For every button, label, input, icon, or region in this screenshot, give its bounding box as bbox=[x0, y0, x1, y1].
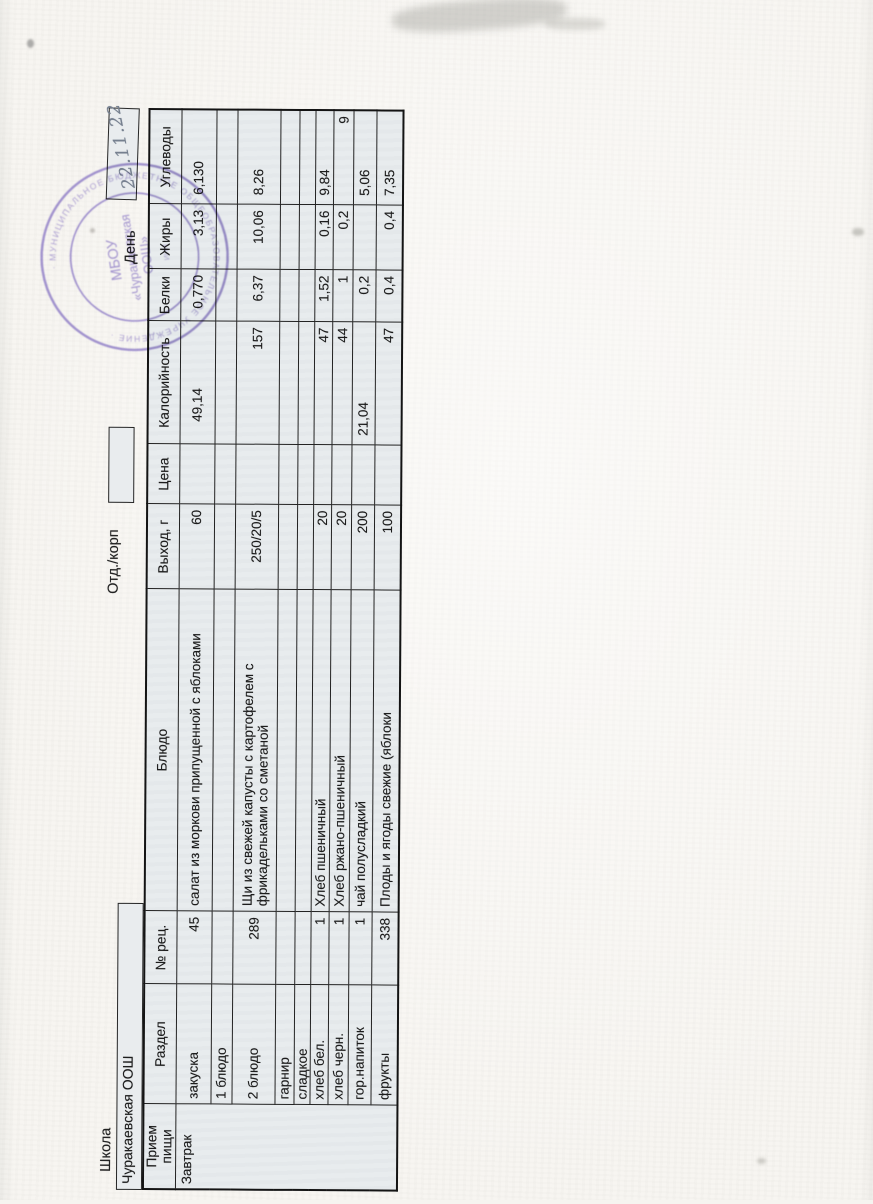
sheet-content: Школа Чуракаевская ООШ Отд./корп День 22… bbox=[0, 0, 873, 1204]
cell-rec: 1 bbox=[329, 912, 349, 985]
header-razdel: Раздел bbox=[143, 984, 176, 1104]
cell-carbs: 9,84 bbox=[315, 110, 334, 205]
cell-price bbox=[215, 444, 236, 504]
cell-price bbox=[180, 444, 215, 504]
cell-dish: Хлеб пшеничный bbox=[311, 590, 331, 912]
dept-box bbox=[108, 427, 134, 503]
dept-label: Отд./корп bbox=[106, 529, 122, 594]
school-label: Школа bbox=[98, 1128, 114, 1172]
cell-out: 100 bbox=[374, 505, 402, 590]
cell-rec: 289 bbox=[233, 912, 276, 985]
cell-protein: 0,4 bbox=[376, 270, 403, 322]
header-out: Выход, г bbox=[147, 504, 180, 589]
cell-carbs: 5,06 bbox=[353, 110, 377, 205]
cell-meal: Завтрак bbox=[175, 1104, 398, 1190]
cell-rec bbox=[276, 912, 295, 985]
cell-out bbox=[214, 504, 236, 589]
cell-carbs: 8,26 bbox=[237, 110, 281, 205]
cell-fat: 0,16 bbox=[315, 205, 333, 270]
cell-dish bbox=[212, 589, 235, 911]
cell-kcal: 44 bbox=[332, 322, 353, 445]
cell-price bbox=[352, 445, 375, 505]
cell-kcal bbox=[279, 322, 299, 445]
cell-rec bbox=[212, 911, 233, 984]
cell-protein bbox=[280, 270, 299, 322]
cell-razdel: хлеб бел. bbox=[310, 985, 329, 1105]
cell-razdel: фрукты bbox=[371, 985, 399, 1105]
cell-fat: 10,06 bbox=[237, 205, 280, 270]
cell-out: 20 bbox=[313, 505, 332, 590]
cell-carbs bbox=[280, 110, 300, 205]
header-dish: Блюдо bbox=[145, 589, 179, 911]
cell-dish: Хлеб ржано-пшеничный bbox=[329, 590, 351, 912]
cell-razdel: 1 блюдо bbox=[211, 984, 233, 1104]
school-stamp: · МУНИЦИПАЛЬНОЕ БЮДЖЕТНОЕ ОБЩЕОБРАЗОВАТЕ… bbox=[20, 142, 250, 372]
cell-kcal: 47 bbox=[314, 322, 333, 445]
cell-out bbox=[297, 505, 314, 590]
header-price: Цена bbox=[147, 444, 180, 504]
cell-razdel: хлеб черн. bbox=[328, 985, 349, 1105]
cell-dish: салат из моркови припущенной с яблоками bbox=[177, 589, 214, 911]
cell-fat bbox=[299, 205, 316, 270]
cell-kcal: 21,04 bbox=[352, 322, 376, 445]
cell-protein: 0,2 bbox=[353, 270, 376, 322]
cell-rec: 45 bbox=[177, 911, 212, 984]
cell-protein bbox=[299, 270, 315, 322]
cell-kcal bbox=[298, 322, 315, 445]
cell-out: 20 bbox=[331, 505, 352, 590]
header-rec: № рец. bbox=[144, 911, 177, 984]
cell-price bbox=[375, 445, 402, 505]
cell-dish: чай полусладкий bbox=[349, 590, 374, 912]
cell-price bbox=[332, 445, 352, 505]
cell-out bbox=[278, 505, 298, 590]
header-meal: Прием пищи bbox=[143, 1104, 176, 1189]
cell-dish bbox=[295, 590, 313, 912]
cell-price bbox=[314, 445, 332, 505]
cell-fat: 0,2 bbox=[333, 205, 353, 270]
cell-dish bbox=[276, 590, 297, 912]
cell-out: 250/20/5 bbox=[235, 505, 279, 590]
cell-price bbox=[298, 445, 314, 505]
stamp-center-line4: ИНН bbox=[160, 244, 171, 261]
cell-out: 200 bbox=[351, 505, 375, 590]
cell-razdel: гор.напиток bbox=[348, 985, 372, 1105]
cell-carbs: 9 bbox=[333, 110, 354, 205]
cell-fat bbox=[353, 205, 376, 270]
cell-dish: Плоды и ягоды свежие (яблоки bbox=[372, 590, 401, 912]
cell-rec: 1 bbox=[349, 912, 372, 985]
rotated-sheet: Школа Чуракаевская ООШ Отд./корп День 22… bbox=[0, 0, 873, 1200]
cell-rec bbox=[295, 912, 312, 985]
cell-dish: Щи из свежей капусты с картофелем с фрик… bbox=[233, 590, 278, 912]
cell-out: 60 bbox=[179, 504, 215, 589]
cell-fat bbox=[280, 205, 299, 270]
cell-razdel: гарнир bbox=[275, 985, 295, 1105]
cell-protein: 1,52 bbox=[315, 270, 333, 322]
cell-price bbox=[279, 445, 298, 505]
cell-rec: 338 bbox=[372, 912, 399, 985]
cell-protein: 1 bbox=[333, 270, 353, 322]
cell-razdel: 2 блюдо bbox=[232, 985, 276, 1105]
cell-carbs: 7,35 bbox=[376, 110, 404, 205]
cell-price bbox=[236, 445, 279, 505]
cell-razdel: закуска bbox=[176, 984, 212, 1104]
scanned-page: Школа Чуракаевская ООШ Отд./корп День 22… bbox=[0, 0, 873, 1200]
cell-rec: 1 bbox=[311, 912, 329, 985]
cell-fat: 0,4 bbox=[376, 205, 403, 270]
cell-razdel: сладкое bbox=[294, 985, 311, 1105]
cell-carbs bbox=[299, 110, 316, 205]
table-row: фрукты 338 Плоды и ягоды свежие (яблоки … bbox=[370, 110, 404, 1190]
cell-kcal: 47 bbox=[375, 322, 403, 445]
school-name-box: Чуракаевская ООШ bbox=[116, 903, 144, 1190]
